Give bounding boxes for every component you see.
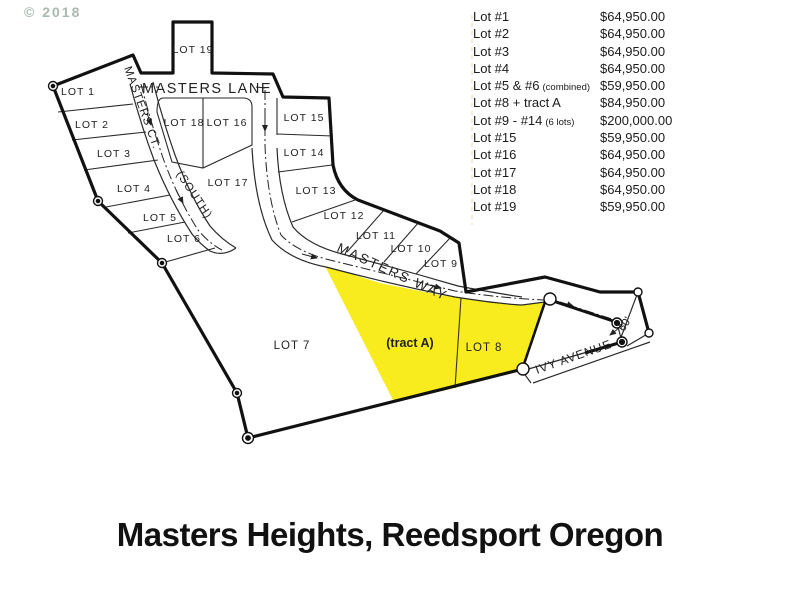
lot-label-11: LOT 11	[356, 230, 396, 242]
lot-label-19: LOT 19	[173, 44, 214, 56]
price-row-label: Lot #16	[473, 147, 516, 162]
price-row: Lot #19$59,950.00	[473, 198, 713, 215]
price-row-label: Lot #18	[473, 182, 516, 197]
price-row-price: $64,950.00	[600, 164, 665, 181]
price-row-label: Lot #5 & #6	[473, 78, 540, 93]
price-row-label: Lot #4	[473, 61, 509, 76]
price-row-price: $59,950.00	[600, 198, 665, 215]
ivy-avenue-label: IVY AVENUE	[533, 337, 613, 377]
price-row: Lot #3$64,950.00	[473, 43, 713, 60]
lot-label-1: LOT 1	[61, 86, 95, 98]
price-row-price: $64,950.00	[600, 181, 665, 198]
lot-label-17: LOT 17	[208, 177, 249, 189]
price-row-price: $64,950.00	[600, 146, 665, 163]
price-row-price: $64,950.00	[600, 8, 665, 25]
price-row: Lot #5 & #6(combined)$59,950.00	[473, 77, 713, 94]
lot-label-15: LOT 15	[284, 112, 325, 124]
price-row-price: $64,950.00	[600, 43, 665, 60]
lot-label-16: LOT 16	[207, 117, 248, 129]
price-row: Lot #4$64,950.00	[473, 60, 713, 77]
price-row-note: (combined)	[543, 82, 591, 93]
lot-label-10: LOT 10	[391, 243, 432, 255]
masters-ct-label: MASTERS CT.	[121, 65, 162, 151]
price-row-label: Lot #19	[473, 199, 516, 214]
price-row: Lot #8 + tract A$84,950.00	[473, 94, 713, 111]
lot-label-18: LOT 18	[164, 117, 205, 129]
price-row-price: $64,950.00	[600, 25, 665, 42]
lot-label-7: LOT 7	[274, 340, 311, 352]
price-row-label: Lot #8 + tract A	[473, 95, 561, 110]
lot-label-14: LOT 14	[284, 147, 325, 159]
price-row-price: $59,950.00	[600, 77, 665, 94]
price-row-label: Lot #9 - #14	[473, 113, 542, 128]
price-row-label: Lot #3	[473, 44, 509, 59]
tract-a-label: (tract A)	[386, 336, 433, 350]
lot-label-9: LOT 9	[424, 258, 458, 270]
lot-label-4: LOT 4	[117, 183, 151, 195]
price-row-label: Lot #1	[473, 9, 509, 24]
price-row: Lot #2$64,950.00	[473, 25, 713, 42]
price-row-price: $200,000.00	[600, 112, 672, 129]
page: { "watermark": "© 2018", "title": "Maste…	[0, 0, 800, 600]
lot-label-13: LOT 13	[296, 185, 337, 197]
lot-label-12: LOT 12	[324, 210, 365, 222]
price-row-label: Lot #17	[473, 165, 516, 180]
lot-label-3: LOT 3	[97, 148, 131, 160]
lot-label-8: LOT 8	[466, 342, 503, 354]
price-row-label: Lot #2	[473, 26, 509, 41]
masters-lane-label: MASTERS LANE	[142, 81, 272, 97]
price-row: Lot #17$64,950.00	[473, 164, 713, 181]
price-row-label: Lot #15	[473, 130, 516, 145]
price-row-price: $84,950.00	[600, 94, 665, 111]
price-row: Lot #1$64,950.00	[473, 8, 713, 25]
price-row: Lot #16$64,950.00	[473, 146, 713, 163]
price-row-price: $59,950.00	[600, 129, 665, 146]
lot-label-6: LOT 6	[167, 233, 201, 245]
page-title: Masters Heights, Reedsport Oregon	[0, 516, 780, 554]
price-row: Lot #9 - #14(6 lots)$200,000.00	[473, 112, 713, 129]
price-row: Lot #15$59,950.00	[473, 129, 713, 146]
price-row-note: (6 lots)	[545, 117, 574, 128]
lot-label-5: LOT 5	[143, 212, 177, 224]
price-list: Lot #1$64,950.00 Lot #2$64,950.00 Lot #3…	[473, 8, 713, 216]
price-row: Lot #18$64,950.00	[473, 181, 713, 198]
price-row-price: $64,950.00	[600, 60, 665, 77]
lot-label-2: LOT 2	[75, 119, 109, 131]
